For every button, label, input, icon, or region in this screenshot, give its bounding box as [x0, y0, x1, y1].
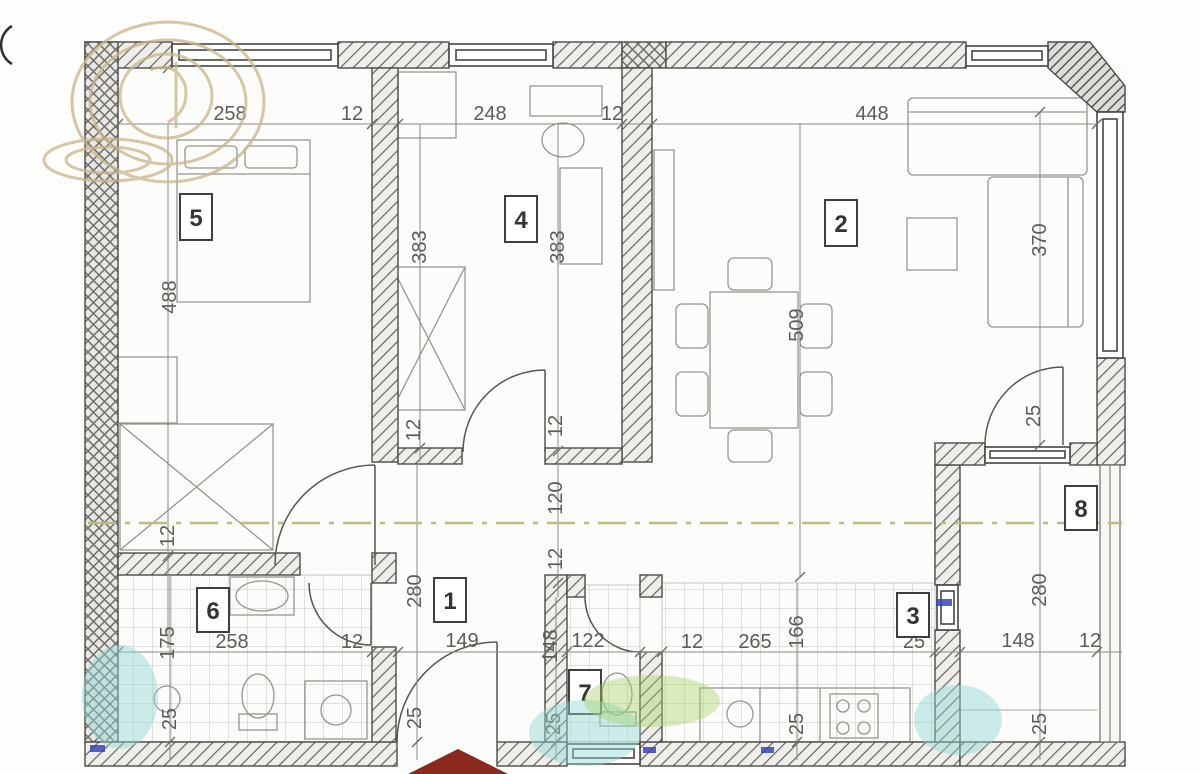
room-label-3: 3: [897, 593, 929, 637]
wall-3-8: [935, 465, 960, 585]
green-watermark: [584, 675, 720, 727]
wall-2-8: [935, 443, 985, 465]
dim-label: 383: [409, 230, 431, 263]
dim-label: 148: [540, 629, 562, 662]
room-number: 4: [514, 207, 528, 234]
dim-label: 12: [1079, 630, 1101, 652]
dim-label: 12: [545, 415, 567, 437]
dim-label: 166: [786, 615, 808, 648]
dim-label: 370: [1029, 223, 1051, 256]
dim-label: 12: [681, 631, 703, 653]
dim-label: 25: [404, 707, 426, 729]
room-number: 6: [206, 598, 219, 625]
wall-column-dark: [622, 42, 666, 68]
dim-label: 248: [473, 103, 506, 125]
room-number: 1: [443, 588, 456, 615]
dim-label: 280: [1029, 573, 1051, 606]
wall-room5-bottom: [118, 553, 300, 575]
dim-label: 12: [341, 103, 363, 125]
room-label-1: 1: [434, 578, 466, 622]
room-label-6: 6: [197, 588, 229, 632]
floor-plan-svg: 258 12 248 12 448 258 12 149 122 12 265 …: [0, 0, 1200, 774]
dim-label: 25: [1023, 405, 1045, 427]
wall-6-1: [372, 647, 396, 742]
room-label-2: 2: [825, 200, 857, 246]
dim-label: 265: [738, 631, 771, 653]
dim-label: 280: [404, 574, 426, 607]
dim-label: 258: [215, 631, 248, 653]
room-number: 8: [1074, 496, 1087, 523]
dim-label: 122: [571, 630, 604, 652]
dim-label: 175: [157, 626, 179, 659]
dim-label: 25: [786, 713, 808, 735]
dim-label: 509: [786, 308, 808, 341]
room-label-5: 5: [180, 194, 212, 240]
dim-label: 12: [601, 103, 623, 125]
dim-label: 383: [547, 230, 569, 263]
dim-label: 25: [159, 708, 181, 730]
dim-label: 12: [545, 548, 567, 570]
room-label-4: 4: [505, 196, 537, 242]
room-number: 5: [189, 205, 202, 232]
dim-label: 488: [159, 280, 181, 313]
room-number: 2: [834, 211, 847, 238]
wall-4-2: [622, 68, 652, 462]
dim-label: 120: [545, 481, 567, 514]
dim-label: 148: [1001, 630, 1034, 652]
dim-label: 12: [157, 525, 179, 547]
dim-label: 448: [855, 103, 888, 125]
dim-label: 12: [341, 631, 363, 653]
cyan-watermark-right: [914, 685, 1002, 755]
cyan-watermark-left: [82, 645, 158, 749]
floorplan-canvas: 258 12 248 12 448 258 12 149 122 12 265 …: [0, 0, 1200, 774]
dim-label: 149: [445, 630, 478, 652]
scan-arc-artifact: [1, 26, 12, 64]
dim-label: 12: [403, 419, 425, 441]
room-number: 3: [906, 603, 919, 630]
room-label-8: 8: [1065, 486, 1097, 530]
dim-label: 25: [1029, 713, 1051, 735]
